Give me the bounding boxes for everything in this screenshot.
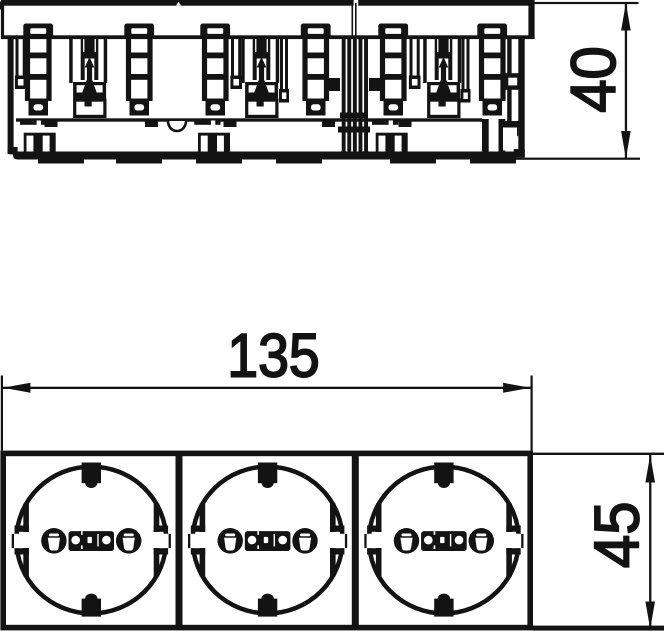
svg-text:135: 135: [227, 322, 320, 390]
svg-text:45: 45: [582, 502, 653, 569]
svg-text:40: 40: [559, 46, 630, 113]
